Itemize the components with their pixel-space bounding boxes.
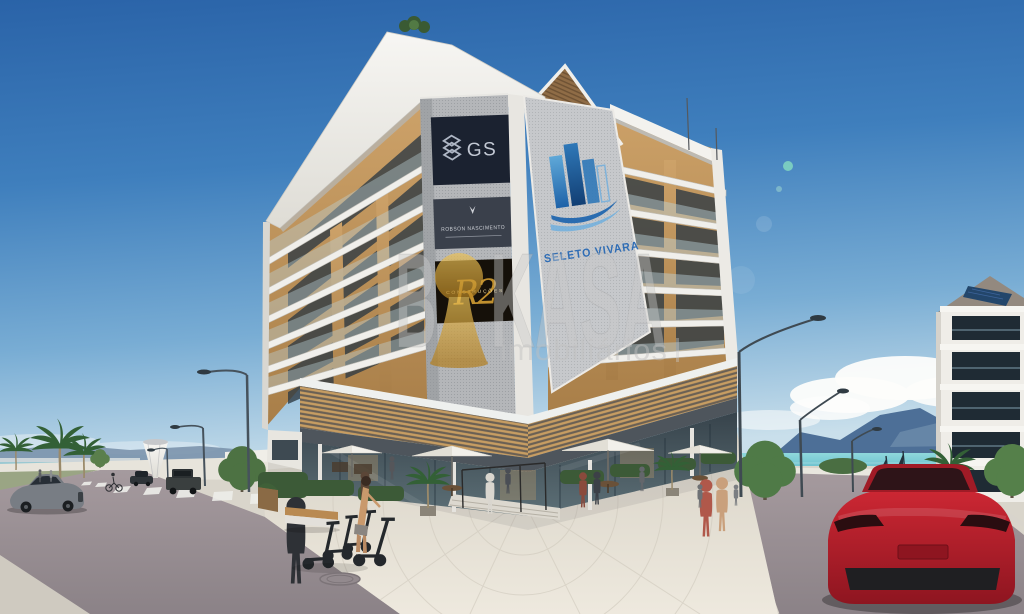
- watermark-divider: [676, 338, 679, 362]
- planter-box: [258, 487, 278, 512]
- watermark-tagline: imobiliários: [500, 334, 668, 367]
- watermark-prefix: B: [395, 225, 437, 376]
- render-canvas: GS ROBSON NASCIMENTO R2 CONSTRUÇÕES: [0, 0, 1024, 614]
- architectural-rendering: GS ROBSON NASCIMENTO R2 CONSTRUÇÕES: [0, 0, 1024, 614]
- billboard-gs: GS: [431, 115, 511, 186]
- billboard-gs-label: GS: [466, 139, 497, 161]
- rear-bumper: [845, 568, 1000, 590]
- license-plate-area: [898, 545, 948, 559]
